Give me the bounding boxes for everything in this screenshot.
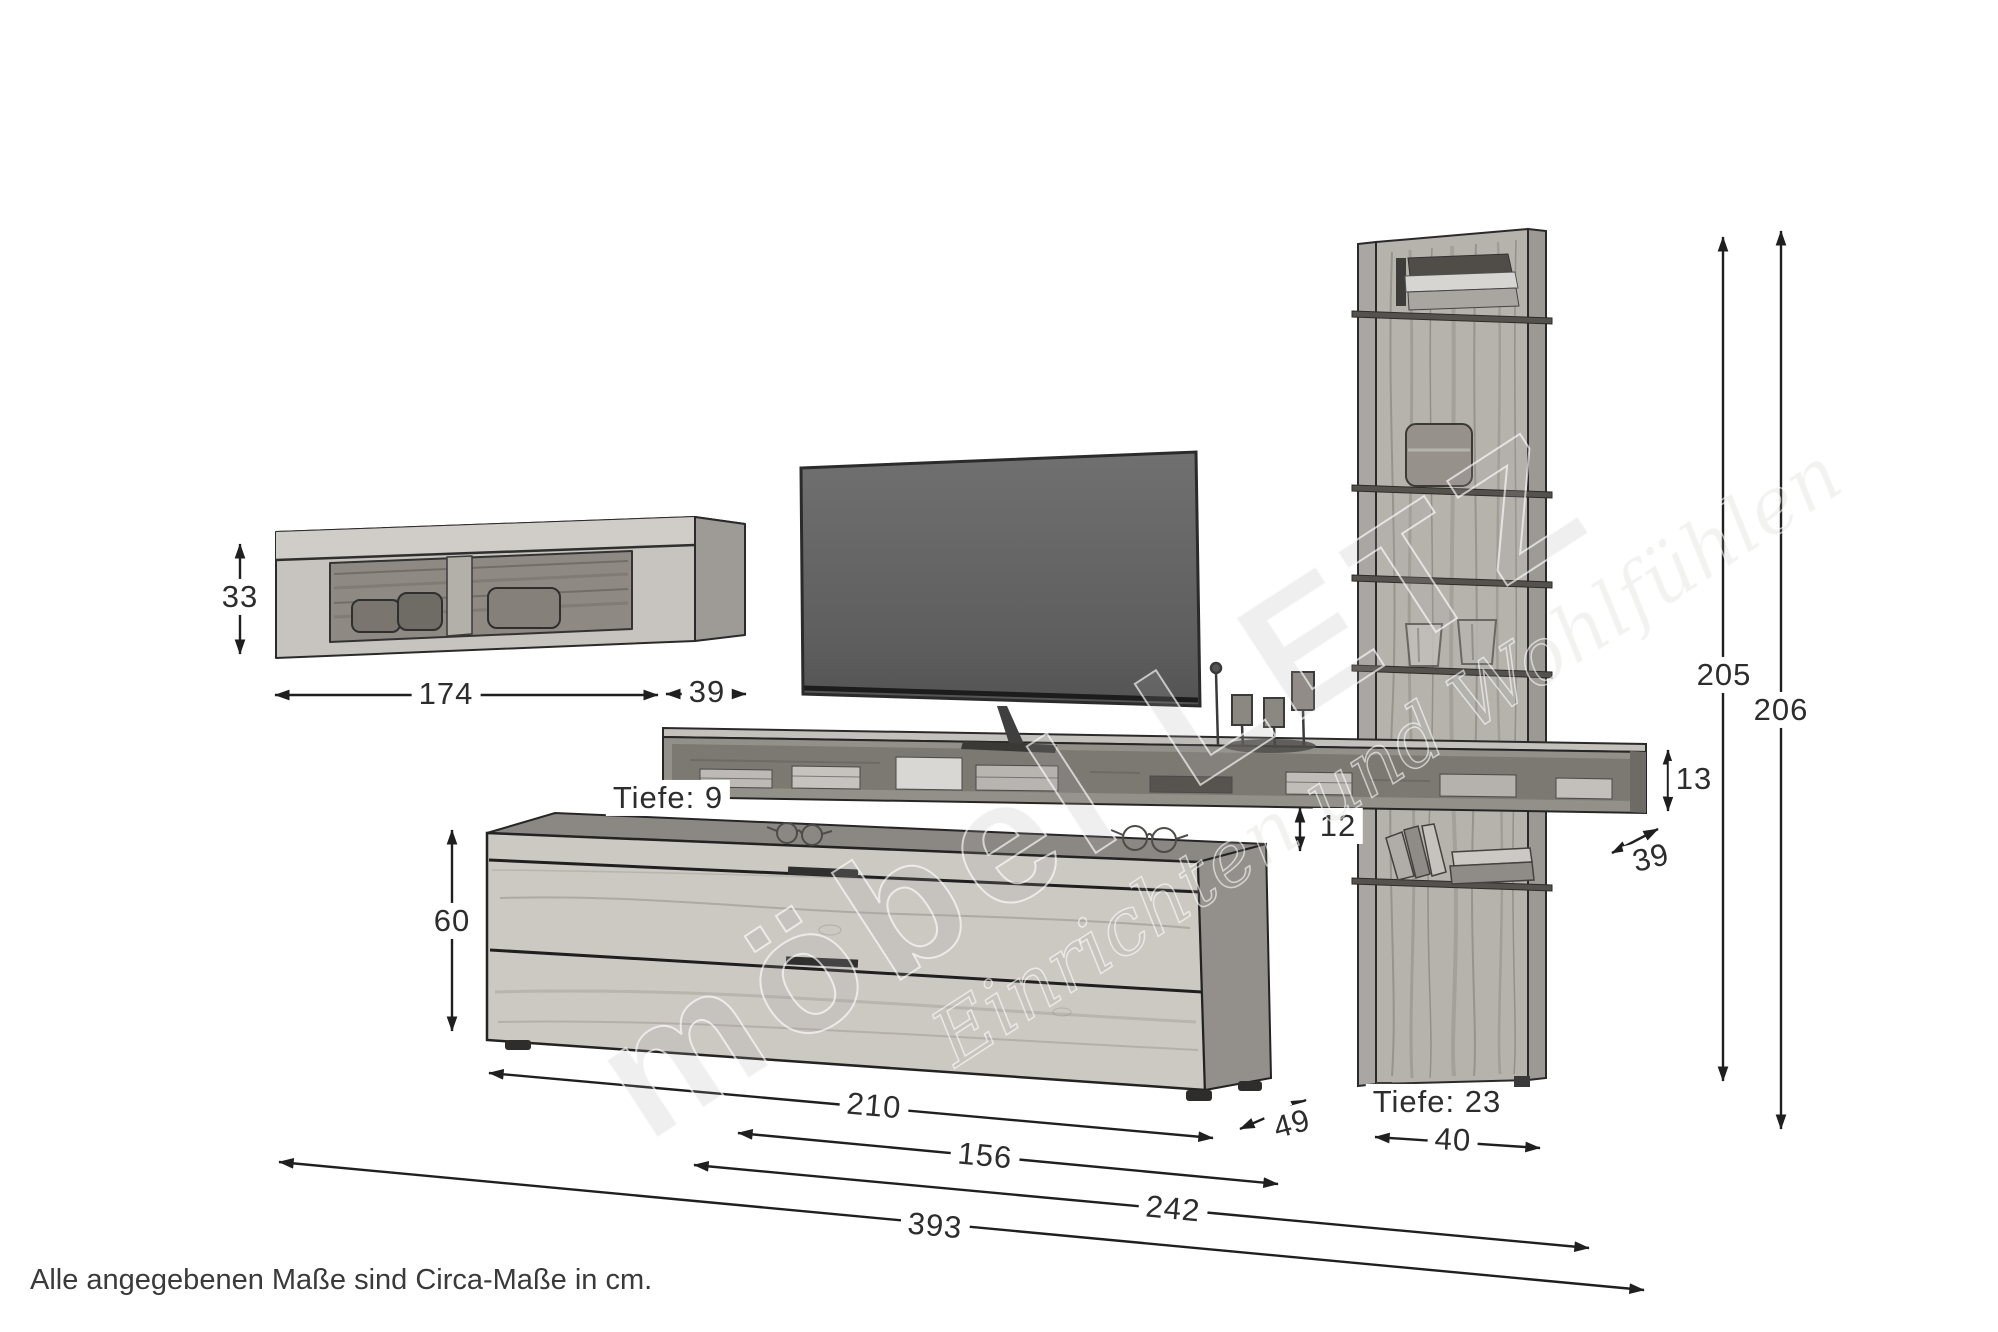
dim-panel-height: 205 [1690, 657, 1759, 693]
dim-cabinet-depth: 39 [682, 674, 732, 710]
dimension-drawing-page: möbel LETZ Einrichten und Wohlfühlen 33 … [0, 0, 1998, 1332]
dim-cabinet-height: 33 [215, 579, 265, 615]
lowboard [487, 813, 1271, 1101]
dim-board-height: 13 [1669, 761, 1719, 797]
measurement-disclaimer: Alle angegebenen Maße sind Circa-Maße in… [30, 1264, 652, 1297]
decor-box [1406, 424, 1472, 486]
dim-inner-width: 156 [949, 1135, 1021, 1177]
dim-total-width: 393 [899, 1205, 971, 1247]
dim-panel-depth-label: Tiefe: 23 [1366, 1084, 1508, 1120]
tv [801, 452, 1200, 753]
dim-cabinet-width: 174 [412, 676, 481, 712]
dim-panel-width: 40 [1427, 1120, 1480, 1159]
hanging-cabinet [276, 517, 745, 658]
dim-lowboard-width: 210 [838, 1085, 910, 1127]
decor-books-top [1396, 254, 1519, 310]
media-board [663, 728, 1646, 813]
wall-panel [1352, 229, 1552, 1093]
dim-board-depth-label: Tiefe: 9 [606, 780, 730, 816]
dim-width-242: 242 [1137, 1188, 1209, 1230]
dim-total-height: 206 [1747, 692, 1816, 728]
dim-gap-12: 12 [1313, 808, 1363, 844]
dim-lowboard-height: 60 [427, 903, 477, 939]
